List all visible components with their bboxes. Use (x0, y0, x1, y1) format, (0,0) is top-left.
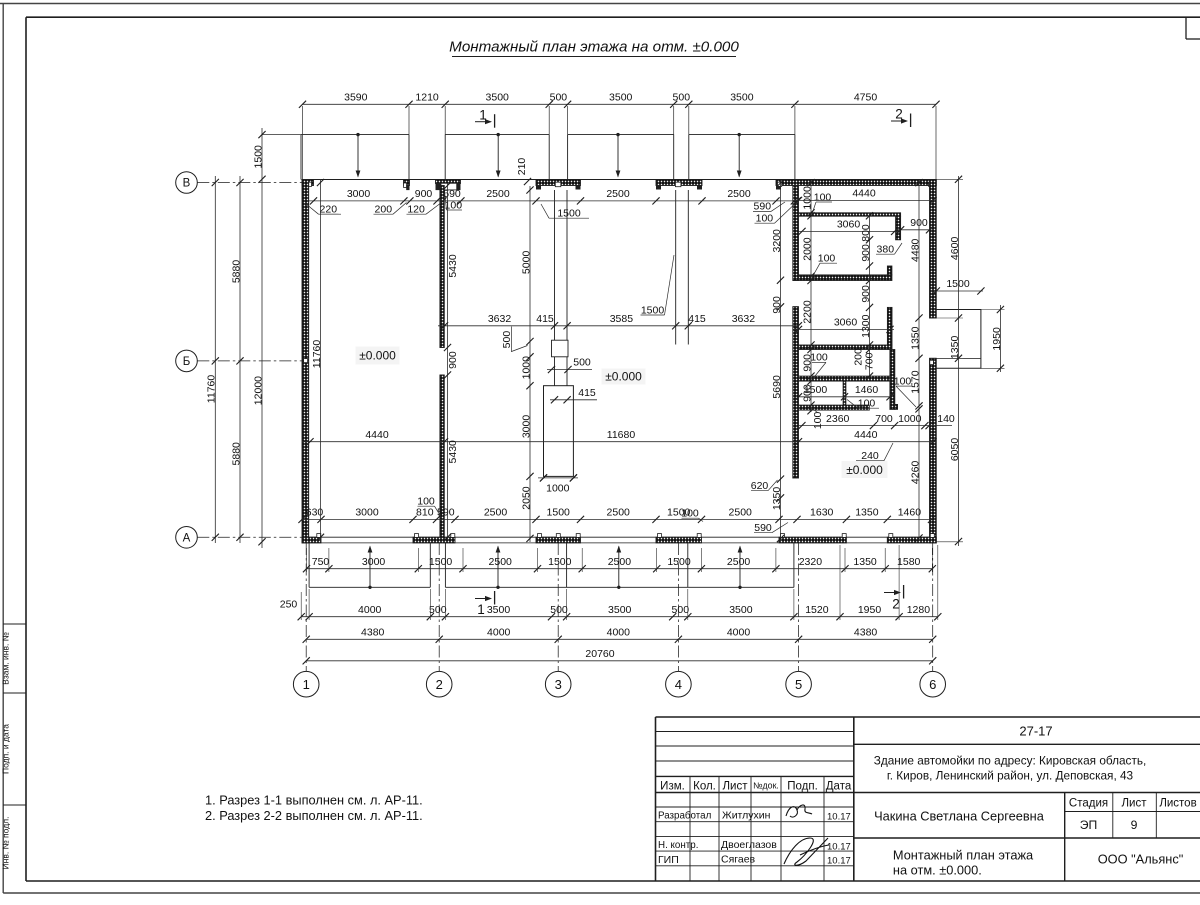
svg-text:Здание автомойки по адресу: Ки: Здание автомойки по адресу: Кировская об… (874, 754, 1147, 768)
svg-text:Инв. № подл.: Инв. № подл. (1, 817, 11, 870)
svg-text:500: 500 (672, 604, 690, 616)
svg-text:Н. контр.: Н. контр. (658, 840, 698, 851)
svg-text:4000: 4000 (487, 627, 511, 639)
svg-text:200: 200 (375, 204, 393, 216)
svg-text:700: 700 (875, 413, 893, 425)
svg-text:140: 140 (937, 413, 955, 425)
svg-text:2: 2 (892, 597, 900, 612)
svg-text:4000: 4000 (727, 627, 751, 639)
svg-text:5430: 5430 (447, 254, 459, 278)
svg-text:100: 100 (810, 352, 828, 364)
svg-text:2500: 2500 (484, 507, 508, 519)
svg-text:2: 2 (436, 677, 443, 692)
svg-text:4440: 4440 (852, 188, 876, 200)
svg-text:Житлухин: Житлухин (722, 810, 771, 822)
svg-text:415: 415 (688, 313, 706, 325)
svg-text:±0.000: ±0.000 (359, 349, 396, 363)
svg-text:Подп.: Подп. (787, 781, 818, 793)
svg-text:11760: 11760 (311, 340, 323, 369)
svg-text:3590: 3590 (344, 92, 368, 104)
svg-text:5: 5 (795, 677, 802, 692)
svg-text:6: 6 (929, 677, 936, 692)
svg-text:Взам. инв. №: Взам. инв. № (1, 632, 11, 685)
svg-text:ООО "Альянс": ООО "Альянс" (1098, 852, 1184, 867)
svg-text:4000: 4000 (358, 604, 382, 616)
svg-text:4380: 4380 (361, 627, 385, 639)
svg-text:2. Разрез 2-2 выполнен см. л.: 2. Разрез 2-2 выполнен см. л. АР-11. (205, 808, 423, 823)
svg-text:5690: 5690 (771, 375, 783, 399)
svg-text:250: 250 (280, 599, 298, 611)
svg-text:4440: 4440 (365, 429, 389, 441)
svg-text:Листов: Листов (1159, 798, 1196, 810)
svg-text:2200: 2200 (801, 300, 813, 324)
svg-text:700: 700 (864, 352, 876, 370)
svg-text:750: 750 (312, 556, 330, 568)
svg-text:Монтажный план этажа: Монтажный план этажа (893, 848, 1034, 863)
svg-text:1950: 1950 (858, 604, 882, 616)
svg-text:11760: 11760 (206, 375, 218, 404)
svg-text:1350: 1350 (771, 487, 783, 511)
svg-text:4260: 4260 (909, 461, 921, 485)
svg-text:г. Киров, Ленинский район, ул.: г. Киров, Ленинский район, ул. Деповская… (887, 769, 1134, 783)
svg-text:3632: 3632 (488, 313, 512, 325)
svg-text:2500: 2500 (489, 556, 513, 568)
svg-text:1350: 1350 (909, 326, 921, 350)
svg-text:900: 900 (447, 351, 459, 369)
svg-text:ЭП: ЭП (1080, 818, 1098, 832)
svg-text:590: 590 (754, 201, 772, 213)
svg-text:1500: 1500 (547, 507, 571, 519)
svg-text:100: 100 (818, 253, 836, 265)
svg-text:4600: 4600 (949, 237, 961, 261)
svg-text:1460: 1460 (898, 507, 922, 519)
svg-text:В: В (183, 178, 191, 190)
svg-text:Дата: Дата (826, 781, 852, 793)
svg-text:2500: 2500 (608, 556, 632, 568)
svg-text:20760: 20760 (585, 648, 614, 660)
svg-text:Стадия: Стадия (1069, 798, 1108, 810)
svg-text:100: 100 (681, 508, 699, 520)
svg-text:1210: 1210 (415, 92, 439, 104)
svg-text:100: 100 (858, 398, 876, 410)
svg-text:4000: 4000 (607, 627, 631, 639)
svg-text:210: 210 (516, 158, 528, 176)
svg-text:1350: 1350 (855, 507, 879, 519)
svg-text:3500: 3500 (609, 92, 633, 104)
svg-text:10.17: 10.17 (827, 856, 851, 867)
svg-text:4440: 4440 (854, 429, 878, 441)
svg-text:2: 2 (895, 107, 903, 122)
svg-text:9: 9 (1131, 818, 1138, 832)
svg-text:100: 100 (812, 411, 824, 429)
svg-text:3000: 3000 (355, 507, 379, 519)
svg-text:А: А (183, 532, 191, 544)
svg-text:1350: 1350 (853, 556, 877, 568)
svg-text:3632: 3632 (732, 313, 756, 325)
svg-text:1: 1 (477, 602, 485, 617)
svg-text:500: 500 (429, 604, 447, 616)
svg-text:1520: 1520 (805, 604, 829, 616)
svg-text:2500: 2500 (486, 188, 510, 200)
svg-text:590: 590 (754, 522, 772, 534)
svg-text:2320: 2320 (799, 556, 823, 568)
svg-text:100: 100 (417, 496, 435, 508)
svg-text:6050: 6050 (949, 438, 961, 462)
svg-text:415: 415 (536, 313, 554, 325)
svg-text:5000: 5000 (520, 251, 532, 275)
svg-text:620: 620 (751, 480, 769, 492)
svg-text:2500: 2500 (729, 507, 753, 519)
svg-text:на отм. ±0.000.: на отм. ±0.000. (893, 863, 982, 878)
svg-text:2000: 2000 (801, 237, 813, 261)
svg-text:1580: 1580 (897, 556, 921, 568)
svg-text:Подп. и дата: Подп. и дата (1, 724, 11, 774)
svg-text:590: 590 (437, 507, 455, 519)
svg-text:2500: 2500 (727, 188, 751, 200)
svg-text:500: 500 (550, 604, 568, 616)
svg-text:3500: 3500 (730, 92, 754, 104)
svg-text:№док.: №док. (753, 781, 779, 791)
svg-text:240: 240 (861, 450, 879, 462)
svg-text:3000: 3000 (520, 415, 532, 439)
svg-text:1. Разрез 1-1 выполнен см. л.: 1. Разрез 1-1 выполнен см. л. АР-11. (205, 793, 423, 808)
svg-text:500: 500 (550, 92, 568, 104)
svg-text:3500: 3500 (608, 604, 632, 616)
svg-text:3500: 3500 (729, 604, 753, 616)
svg-text:5430: 5430 (447, 440, 459, 464)
svg-text:2360: 2360 (826, 413, 850, 425)
svg-text:1500: 1500 (252, 145, 264, 169)
svg-text:11680: 11680 (607, 429, 636, 441)
svg-text:4480: 4480 (909, 238, 921, 262)
svg-text:900: 900 (771, 296, 783, 314)
svg-text:1350: 1350 (949, 336, 961, 360)
svg-text:3200: 3200 (771, 229, 783, 253)
svg-text:Разработал: Разработал (658, 811, 712, 822)
svg-text:3000: 3000 (347, 188, 371, 200)
svg-text:415: 415 (578, 387, 596, 399)
svg-text:5880: 5880 (230, 442, 242, 466)
svg-text:3500: 3500 (486, 92, 510, 104)
svg-text:Изм.: Изм. (660, 781, 685, 793)
svg-text:4380: 4380 (854, 627, 878, 639)
svg-text:3060: 3060 (837, 219, 861, 231)
svg-text:380: 380 (877, 244, 895, 256)
svg-text:27-17: 27-17 (1019, 724, 1052, 739)
svg-text:900: 900 (415, 188, 433, 200)
svg-text:800: 800 (860, 224, 872, 242)
svg-text:2500: 2500 (607, 507, 631, 519)
svg-text:1280: 1280 (907, 604, 931, 616)
svg-text:5880: 5880 (230, 260, 242, 284)
svg-text:3060: 3060 (834, 317, 858, 329)
svg-text:100: 100 (894, 375, 912, 387)
svg-text:220: 220 (320, 204, 338, 216)
svg-text:4: 4 (675, 677, 682, 692)
svg-text:1500: 1500 (429, 556, 453, 568)
svg-text:2500: 2500 (727, 556, 751, 568)
svg-text:4750: 4750 (854, 92, 878, 104)
svg-text:3500: 3500 (487, 604, 511, 616)
svg-text:Лист: Лист (1122, 798, 1148, 810)
svg-text:900: 900 (860, 285, 872, 303)
svg-text:±0.000: ±0.000 (846, 463, 883, 477)
svg-text:500: 500 (673, 92, 691, 104)
svg-text:10.17: 10.17 (827, 812, 851, 823)
svg-text:1500: 1500 (946, 278, 970, 290)
svg-text:1000: 1000 (520, 356, 532, 380)
svg-text:590: 590 (443, 188, 461, 200)
svg-text:1460: 1460 (855, 384, 879, 396)
svg-text:900: 900 (801, 384, 813, 402)
svg-text:1500: 1500 (641, 304, 665, 316)
svg-text:±0.000: ±0.000 (605, 370, 642, 384)
svg-text:Сягаев: Сягаев (721, 854, 756, 866)
svg-text:2500: 2500 (606, 188, 630, 200)
svg-text:1000: 1000 (801, 186, 813, 210)
svg-text:Чакина Светлана Сергеевна: Чакина Светлана Сергеевна (874, 809, 1045, 824)
svg-text:12000: 12000 (252, 376, 264, 405)
svg-text:3: 3 (555, 677, 562, 692)
svg-text:1000: 1000 (898, 413, 922, 425)
svg-text:Б: Б (183, 356, 191, 368)
svg-text:1000: 1000 (546, 483, 570, 495)
svg-text:1300: 1300 (860, 314, 872, 338)
svg-text:900: 900 (860, 244, 872, 262)
svg-text:1950: 1950 (991, 327, 1003, 351)
svg-text:Двоеглазов: Двоеглазов (721, 839, 777, 851)
svg-text:1630: 1630 (810, 507, 834, 519)
svg-text:ГИП: ГИП (658, 854, 679, 866)
svg-text:1: 1 (303, 677, 310, 692)
svg-text:2050: 2050 (520, 486, 532, 510)
svg-text:Лист: Лист (723, 781, 749, 793)
svg-text:1500: 1500 (548, 556, 572, 568)
svg-text:100: 100 (814, 191, 832, 203)
svg-text:Кол.: Кол. (693, 781, 716, 793)
svg-text:1500: 1500 (557, 208, 581, 220)
svg-text:10.17: 10.17 (827, 842, 851, 853)
svg-text:100: 100 (756, 213, 774, 225)
svg-text:500: 500 (573, 357, 591, 369)
svg-text:1500: 1500 (667, 556, 691, 568)
svg-text:Монтажный план этажа на отм. ±: Монтажный план этажа на отм. ±0.000 (449, 39, 739, 56)
svg-text:1: 1 (479, 107, 487, 122)
svg-text:120: 120 (407, 204, 425, 216)
svg-text:3585: 3585 (610, 313, 634, 325)
svg-text:810: 810 (416, 507, 434, 519)
svg-text:3000: 3000 (362, 556, 386, 568)
